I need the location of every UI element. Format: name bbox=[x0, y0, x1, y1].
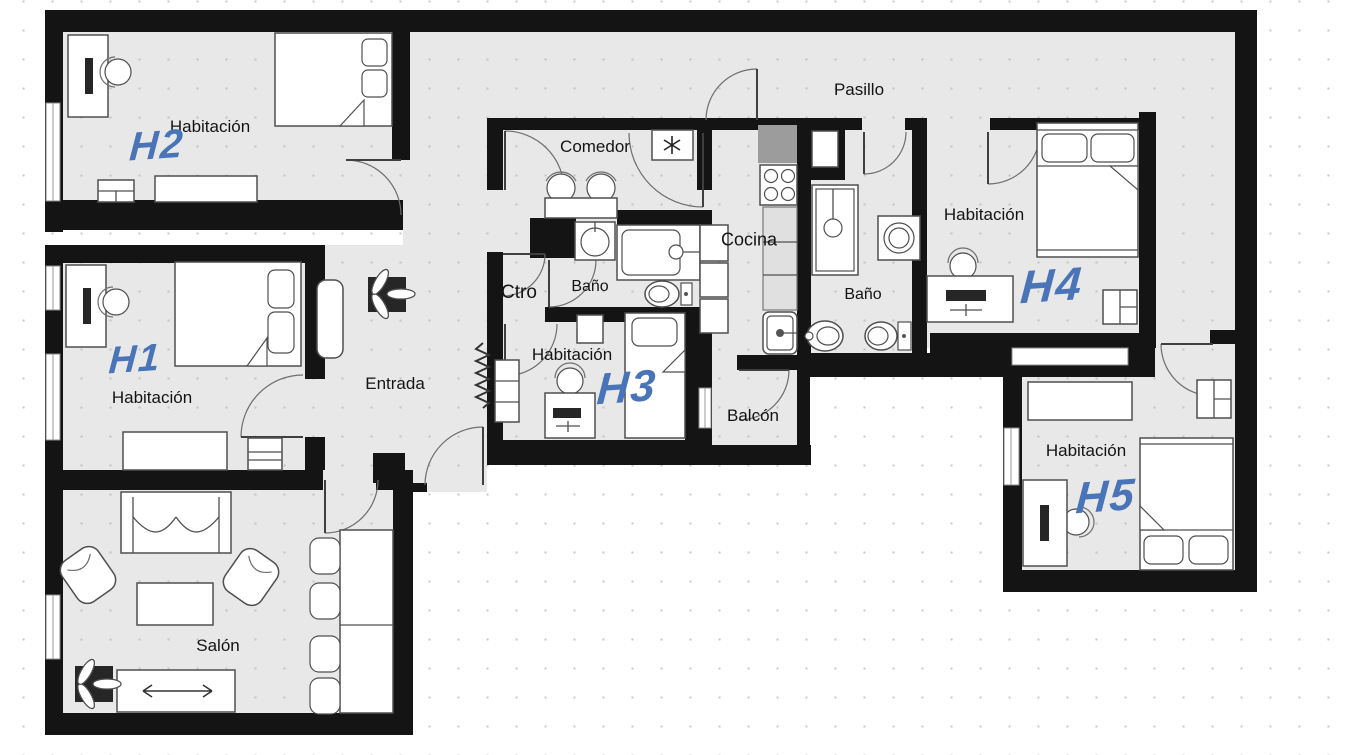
label-entrada: Entrada bbox=[365, 374, 425, 394]
room-label-h3: Habitación bbox=[532, 345, 612, 365]
door-swing bbox=[988, 132, 1040, 184]
desk-monitor bbox=[83, 288, 91, 324]
door-swing bbox=[864, 132, 906, 174]
room-code-h4: H4 bbox=[1019, 256, 1085, 315]
pillow bbox=[268, 270, 294, 308]
label-bano2: Baño bbox=[844, 286, 881, 304]
burner bbox=[782, 170, 795, 183]
door-swing-entrance bbox=[425, 427, 483, 485]
wall bbox=[45, 200, 403, 230]
kitchen-cabinet bbox=[700, 263, 728, 297]
wall bbox=[797, 358, 810, 457]
label-salon: Salón bbox=[196, 636, 239, 656]
dining-table bbox=[545, 198, 617, 218]
pillow bbox=[1091, 134, 1134, 162]
wall bbox=[1210, 330, 1235, 344]
wall bbox=[305, 437, 325, 470]
chair bbox=[310, 678, 340, 714]
table bbox=[1028, 382, 1132, 420]
floor-plan: Pasillo Habitación H2 Habitación H1 Entr… bbox=[0, 0, 1347, 755]
counter bbox=[763, 207, 797, 310]
label-pasillo: Pasillo bbox=[834, 80, 884, 100]
label-bano1: Baño bbox=[571, 278, 608, 296]
chair bbox=[310, 538, 340, 574]
wall bbox=[45, 245, 325, 263]
desk-chair bbox=[948, 248, 978, 279]
plant-icon bbox=[369, 267, 415, 320]
label-ctro: Ctro bbox=[501, 282, 537, 304]
label-balcon: Balcón bbox=[727, 406, 779, 426]
wall bbox=[797, 118, 811, 358]
plant-icon bbox=[75, 657, 121, 710]
wall bbox=[393, 480, 413, 735]
pillow bbox=[1189, 536, 1228, 564]
label-comedor: Comedor bbox=[560, 137, 630, 157]
shelf bbox=[495, 360, 519, 422]
coffee-table bbox=[137, 583, 213, 625]
wall bbox=[403, 483, 427, 492]
pillow bbox=[362, 70, 387, 97]
wall bbox=[45, 10, 1257, 32]
desk-chair bbox=[555, 363, 585, 394]
wall bbox=[1235, 10, 1257, 592]
furniture-bano2 bbox=[805, 131, 920, 351]
door-swing bbox=[706, 69, 757, 120]
wall bbox=[1139, 112, 1156, 348]
label-cocina: Cocina bbox=[721, 230, 777, 251]
cabinet bbox=[317, 280, 343, 358]
wall bbox=[392, 30, 410, 160]
burner bbox=[782, 188, 795, 201]
room-code-h2: H2 bbox=[128, 121, 186, 170]
water-heater bbox=[812, 131, 838, 167]
wall bbox=[697, 118, 712, 190]
desk-chair bbox=[100, 57, 131, 87]
desk-monitor bbox=[85, 58, 93, 94]
desk-monitor bbox=[946, 290, 986, 301]
pillow bbox=[268, 312, 294, 353]
room-label-h4: Habitación bbox=[944, 205, 1024, 225]
room-code-h3: H3 bbox=[595, 361, 659, 416]
wall bbox=[530, 218, 576, 258]
wall bbox=[686, 445, 811, 465]
kitchen-cabinet bbox=[700, 299, 728, 333]
armchair bbox=[219, 544, 284, 610]
wall bbox=[1003, 570, 1257, 592]
room-label-h1: Habitación bbox=[112, 388, 192, 408]
burner bbox=[765, 188, 778, 201]
wall bbox=[810, 353, 930, 377]
armchair bbox=[56, 542, 121, 608]
pillow bbox=[632, 318, 677, 346]
furniture-salon bbox=[56, 492, 393, 714]
wall bbox=[45, 470, 323, 490]
door-swing bbox=[241, 375, 303, 437]
desk-monitor bbox=[553, 408, 581, 418]
door-swing bbox=[325, 480, 378, 533]
burner bbox=[765, 170, 778, 183]
table bbox=[123, 432, 227, 470]
desk-chair bbox=[98, 287, 129, 317]
pillow bbox=[1042, 134, 1087, 162]
furniture-h1 bbox=[66, 262, 301, 470]
dresser bbox=[248, 438, 282, 470]
desk-monitor bbox=[1040, 505, 1049, 541]
table bbox=[155, 176, 257, 202]
wall bbox=[487, 440, 712, 465]
window bbox=[1012, 348, 1128, 365]
wall bbox=[45, 713, 413, 735]
pillow bbox=[362, 39, 387, 66]
room-code-h5: H5 bbox=[1074, 470, 1138, 525]
wall bbox=[373, 453, 405, 483]
room-code-h1: H1 bbox=[107, 337, 162, 384]
room-label-h5: Habitación bbox=[1046, 441, 1126, 461]
chair bbox=[310, 583, 340, 619]
wall-cabinet bbox=[577, 315, 603, 343]
wall bbox=[487, 118, 503, 190]
pillow bbox=[1144, 536, 1183, 564]
kitchen-shaft bbox=[758, 125, 797, 163]
wall bbox=[845, 118, 862, 130]
wall bbox=[487, 118, 712, 130]
chair bbox=[310, 636, 340, 672]
dining-table bbox=[340, 530, 393, 713]
wall bbox=[617, 210, 712, 225]
